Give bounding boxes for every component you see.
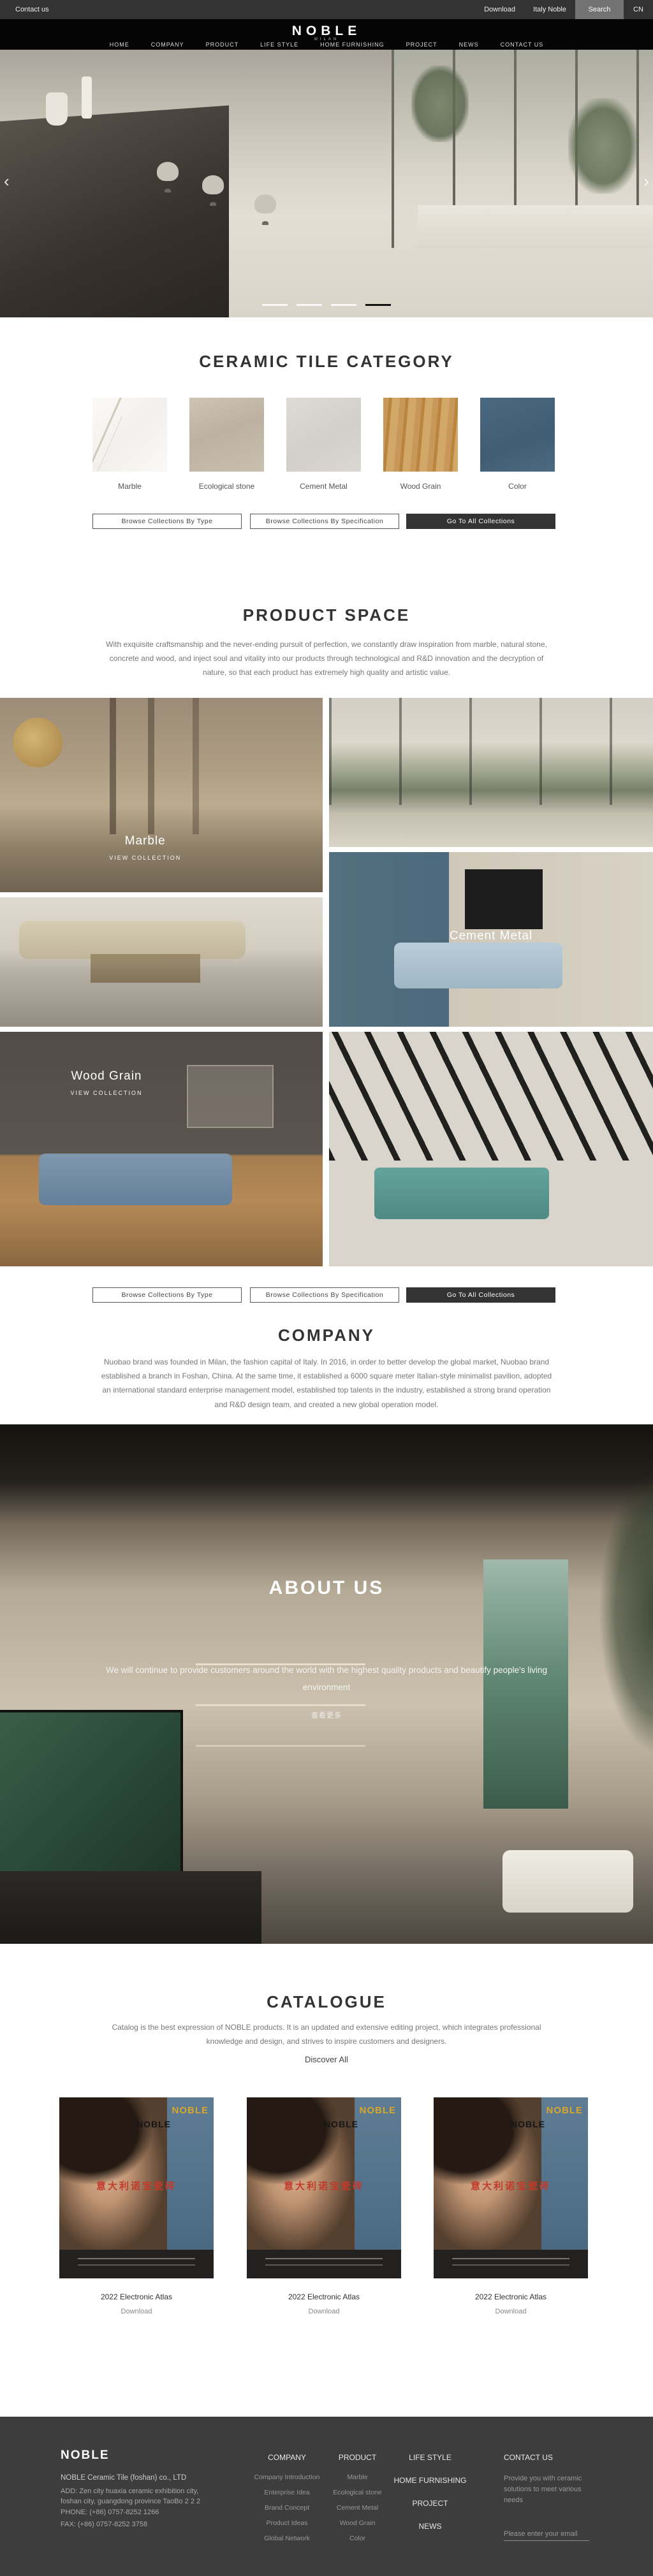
category-item-label: Ecological stone bbox=[189, 482, 264, 491]
product-space-description: With exquisite craftsmanship and the nev… bbox=[97, 637, 556, 680]
about-us-section: ABOUT US We will continue to provide cus… bbox=[0, 1424, 653, 1944]
category-section-title: CERAMIC TILE CATEGORY bbox=[0, 352, 653, 372]
catalogue-cover-image[interactable]: NOBLE NOBLE 意大利诺宝瓷砖 bbox=[434, 2097, 588, 2278]
product-tile-living-room-photo[interactable] bbox=[0, 897, 323, 1027]
brand-logo[interactable]: NOBLE bbox=[0, 24, 653, 39]
tile-name: Cement Metal bbox=[329, 929, 653, 943]
cover-brand-gold: NOBLE bbox=[547, 2105, 583, 2116]
cover-art-hair bbox=[247, 2097, 339, 2184]
tile-name: Marble bbox=[0, 834, 290, 848]
hero-photo-stool bbox=[157, 162, 179, 181]
browse-by-type-button[interactable]: Browse Collections By Type bbox=[92, 514, 242, 529]
nav-item-home[interactable]: HOME bbox=[110, 41, 129, 48]
company-section-title: COMPANY bbox=[0, 1326, 653, 1345]
cover-chinese-title: 意大利诺宝瓷砖 bbox=[59, 2179, 214, 2192]
discover-all-link[interactable]: Discover All bbox=[0, 2055, 653, 2064]
category-item-label: Cement Metal bbox=[286, 482, 361, 491]
nav-item-home-furnishing[interactable]: HOME FURNISHING bbox=[320, 41, 385, 48]
category-item-label: Color bbox=[480, 482, 555, 491]
about-us-description: We will continue to provide customers ar… bbox=[103, 1661, 550, 1696]
category-item-wood-grain[interactable]: Wood Grain bbox=[383, 398, 458, 491]
footer-link-project[interactable]: PROJECT bbox=[390, 2499, 470, 2508]
footer-column-title[interactable]: PRODUCT bbox=[324, 2453, 391, 2462]
browse-by-type-button[interactable]: Browse Collections By Type bbox=[92, 1287, 242, 1303]
footer-link-brand-concept[interactable]: Brand Concept bbox=[246, 2504, 328, 2512]
hero-photo-plant bbox=[411, 66, 469, 142]
tile-label-marble[interactable]: Marble VIEW COLLECTION bbox=[0, 834, 290, 861]
noble-homepage: Contact us Download Italy Noble Search C… bbox=[0, 0, 653, 2576]
tile-name: Wood Grain bbox=[0, 1069, 213, 1083]
footer-contact-column: CONTACT US Provide you with ceramic solu… bbox=[504, 2453, 593, 2541]
hero-photo-plant bbox=[568, 98, 638, 194]
hero-pager-dash-4-active[interactable] bbox=[365, 304, 391, 306]
color-swatch-image[interactable] bbox=[480, 398, 555, 472]
hero-pager-dash-3[interactable] bbox=[331, 304, 356, 306]
marble-swatch-image[interactable] bbox=[92, 398, 167, 472]
cover-brand-black: NOBLE bbox=[324, 2119, 358, 2129]
cover-bottom-band bbox=[59, 2250, 214, 2278]
product-space-grid: Marble VIEW COLLECTION Cement Metal VIEW… bbox=[0, 698, 653, 1266]
product-tile-marble[interactable]: Marble VIEW COLLECTION bbox=[0, 698, 323, 892]
hero-pager-dash-1[interactable] bbox=[262, 304, 288, 306]
download-link[interactable]: Download bbox=[484, 6, 515, 13]
catalogue-card-2[interactable]: NOBLE NOBLE 意大利诺宝瓷砖 2022 Electronic Atla… bbox=[247, 2097, 401, 2315]
nav-item-contact-us[interactable]: CONTACT US bbox=[501, 41, 544, 48]
footer-fax: FAX: (+86) 0757-8252 3758 bbox=[61, 2521, 147, 2528]
catalogue-description: Catalog is the best expression of NOBLE … bbox=[97, 2020, 556, 2048]
hero-pager bbox=[0, 304, 653, 306]
nav-item-company[interactable]: COMPANY bbox=[151, 41, 184, 48]
footer-link-color[interactable]: Color bbox=[324, 2535, 391, 2542]
tile-label-wood-grain[interactable]: Wood Grain VIEW COLLECTION bbox=[0, 1069, 213, 1096]
footer-link-home-furnishing[interactable]: HOME FURNISHING bbox=[390, 2476, 470, 2485]
footer-column-title[interactable]: COMPANY bbox=[246, 2453, 328, 2462]
wood-grain-swatch-image[interactable] bbox=[383, 398, 458, 472]
product-space-section-title: PRODUCT SPACE bbox=[0, 605, 653, 625]
browse-by-specification-button[interactable]: Browse Collections By Specification bbox=[250, 1287, 399, 1303]
category-item-ecological-stone[interactable]: Ecological stone bbox=[189, 398, 264, 491]
footer-link-product-ideas[interactable]: Product Ideas bbox=[246, 2519, 328, 2527]
footer-link-news[interactable]: NEWS bbox=[390, 2522, 470, 2531]
cover-chinese-title: 意大利诺宝瓷砖 bbox=[434, 2179, 588, 2192]
tile-label-cement-metal[interactable]: Cement Metal VIEW COLLECTION bbox=[329, 929, 653, 956]
go-to-all-collections-button[interactable]: Go To All Collections bbox=[406, 514, 555, 529]
cover-art-hair bbox=[59, 2097, 152, 2184]
cover-brand-black: NOBLE bbox=[136, 2119, 171, 2129]
footer-phone: PHONE: (+86) 0757-8252 1266 bbox=[61, 2508, 159, 2516]
chevron-right-icon[interactable]: › bbox=[643, 173, 649, 189]
footer-address: ADD: Zen city huaxia ceramic exhibition … bbox=[61, 2487, 220, 2507]
catalogue-card-title: 2022 Electronic Atlas bbox=[434, 2292, 588, 2301]
contact-us-link[interactable]: Contact us bbox=[15, 6, 49, 13]
hero-photo-vase bbox=[46, 92, 68, 126]
italy-noble-link[interactable]: Italy Noble bbox=[533, 6, 566, 13]
main-nav: HOME COMPANY PRODUCT LIFE STYLE HOME FUR… bbox=[0, 41, 653, 48]
collection-buttons-row-1: Browse Collections By Type Browse Collec… bbox=[0, 514, 653, 529]
footer-column-company: COMPANY Company Introduction Enterprise … bbox=[246, 2453, 328, 2550]
hero-photo-stool bbox=[202, 175, 224, 194]
footer-logo: NOBLE bbox=[61, 2449, 110, 2463]
product-tile-terrace-photo[interactable] bbox=[329, 698, 653, 847]
about-photo-console bbox=[0, 1871, 261, 1944]
company-description: Nuobao brand was founded in Milan, the f… bbox=[97, 1355, 556, 1412]
cover-art-hair bbox=[434, 2097, 526, 2184]
site-footer: NOBLE NOBLE Ceramic Tile (foshan) co., L… bbox=[0, 2417, 653, 2576]
about-us-title: ABOUT US bbox=[0, 1577, 653, 1599]
go-to-all-collections-button[interactable]: Go To All Collections bbox=[406, 1287, 555, 1303]
footer-link-life-style[interactable]: LIFE STYLE bbox=[390, 2453, 470, 2462]
footer-link-cement-metal[interactable]: Cement Metal bbox=[324, 2504, 391, 2512]
about-photo-sofa bbox=[503, 1850, 633, 1913]
footer-company-name: NOBLE Ceramic Tile (foshan) co., LTD bbox=[61, 2474, 186, 2482]
catalogue-download-link[interactable]: Download bbox=[434, 2308, 588, 2315]
category-item-cement-metal[interactable]: Cement Metal bbox=[286, 398, 361, 491]
site-header: NOBLE MILAN HOME COMPANY PRODUCT LIFE ST… bbox=[0, 19, 653, 50]
catalogue-download-link[interactable]: Download bbox=[247, 2308, 401, 2315]
footer-link-wood-grain[interactable]: Wood Grain bbox=[324, 2519, 391, 2527]
hero-slider: ‹ › bbox=[0, 50, 653, 317]
cover-bottom-band bbox=[434, 2250, 588, 2278]
product-tile-striped-room-photo[interactable] bbox=[329, 1032, 653, 1266]
footer-column-product: PRODUCT Marble Ecological stone Cement M… bbox=[324, 2453, 391, 2550]
footer-section-links: LIFE STYLE HOME FURNISHING PROJECT NEWS bbox=[390, 2453, 470, 2545]
cement-metal-swatch-image[interactable] bbox=[286, 398, 361, 472]
cover-brand-black: NOBLE bbox=[511, 2119, 545, 2129]
footer-contact-title[interactable]: CONTACT US bbox=[504, 2453, 593, 2462]
about-us-more-link[interactable]: 查看更多 bbox=[0, 1710, 653, 1720]
cover-brand-gold: NOBLE bbox=[172, 2105, 209, 2116]
view-collection-link[interactable]: VIEW COLLECTION bbox=[329, 950, 653, 956]
catalogue-download-link[interactable]: Download bbox=[59, 2308, 214, 2315]
chevron-left-icon[interactable]: ‹ bbox=[4, 173, 10, 189]
cover-bottom-band bbox=[247, 2250, 401, 2278]
product-tile-wood-grain[interactable]: Wood Grain VIEW COLLECTION bbox=[0, 1032, 323, 1266]
language-switch-cn[interactable]: CN bbox=[624, 0, 653, 19]
cover-brand-gold: NOBLE bbox=[360, 2105, 397, 2116]
browse-by-specification-button[interactable]: Browse Collections By Specification bbox=[250, 514, 399, 529]
catalogue-card-title: 2022 Electronic Atlas bbox=[59, 2292, 214, 2301]
top-utility-bar: Contact us Download Italy Noble Search C… bbox=[0, 0, 653, 19]
about-photo-tree bbox=[562, 1424, 653, 1892]
footer-link-marble[interactable]: Marble bbox=[324, 2473, 391, 2481]
category-item-marble[interactable]: Marble bbox=[92, 398, 167, 491]
newsletter-email-input[interactable] bbox=[504, 2528, 589, 2541]
catalogue-card-3[interactable]: NOBLE NOBLE 意大利诺宝瓷砖 2022 Electronic Atla… bbox=[434, 2097, 588, 2315]
nav-item-life-style[interactable]: LIFE STYLE bbox=[260, 41, 298, 48]
hero-photo-counter-island bbox=[0, 105, 229, 317]
catalogue-card-1[interactable]: NOBLE NOBLE 意大利诺宝瓷砖 2022 Electronic Atla… bbox=[59, 2097, 214, 2315]
view-collection-link[interactable]: VIEW COLLECTION bbox=[0, 1090, 213, 1096]
footer-link-enterprise-idea[interactable]: Enterprise Idea bbox=[246, 2489, 328, 2496]
catalogue-section-title: CATALOGUE bbox=[0, 1992, 653, 2012]
hero-photo-vase-tall bbox=[82, 76, 92, 119]
footer-link-ecological-stone[interactable]: Ecological stone bbox=[324, 2489, 391, 2496]
hero-photo-stool bbox=[254, 194, 276, 213]
catalogue-card-title: 2022 Electronic Atlas bbox=[247, 2292, 401, 2301]
catalogue-cover-image[interactable]: NOBLE NOBLE 意大利诺宝瓷砖 bbox=[247, 2097, 401, 2278]
category-item-color[interactable]: Color bbox=[480, 398, 555, 491]
collection-buttons-row-2: Browse Collections By Type Browse Collec… bbox=[0, 1287, 653, 1303]
category-item-label: Wood Grain bbox=[383, 482, 458, 491]
hero-photo-gravel bbox=[418, 205, 653, 248]
footer-link-global-network[interactable]: Global Network bbox=[246, 2535, 328, 2542]
category-item-label: Marble bbox=[92, 482, 167, 491]
product-tile-cement-metal[interactable]: Cement Metal VIEW COLLECTION bbox=[329, 852, 653, 1027]
catalogue-cover-image[interactable]: NOBLE NOBLE 意大利诺宝瓷砖 bbox=[59, 2097, 214, 2278]
cover-chinese-title: 意大利诺宝瓷砖 bbox=[247, 2179, 401, 2192]
view-collection-link[interactable]: VIEW COLLECTION bbox=[0, 855, 290, 861]
footer-link-company-introduction[interactable]: Company Introduction bbox=[246, 2473, 328, 2481]
ecological-stone-swatch-image[interactable] bbox=[189, 398, 264, 472]
nav-item-news[interactable]: NEWS bbox=[459, 41, 479, 48]
nav-item-product[interactable]: PRODUCT bbox=[206, 41, 239, 48]
footer-contact-text: Provide you with ceramic solutions to me… bbox=[504, 2473, 593, 2506]
search-button[interactable]: Search bbox=[575, 0, 624, 19]
nav-item-project[interactable]: PROJECT bbox=[406, 41, 437, 48]
hero-pager-dash-2[interactable] bbox=[297, 304, 322, 306]
